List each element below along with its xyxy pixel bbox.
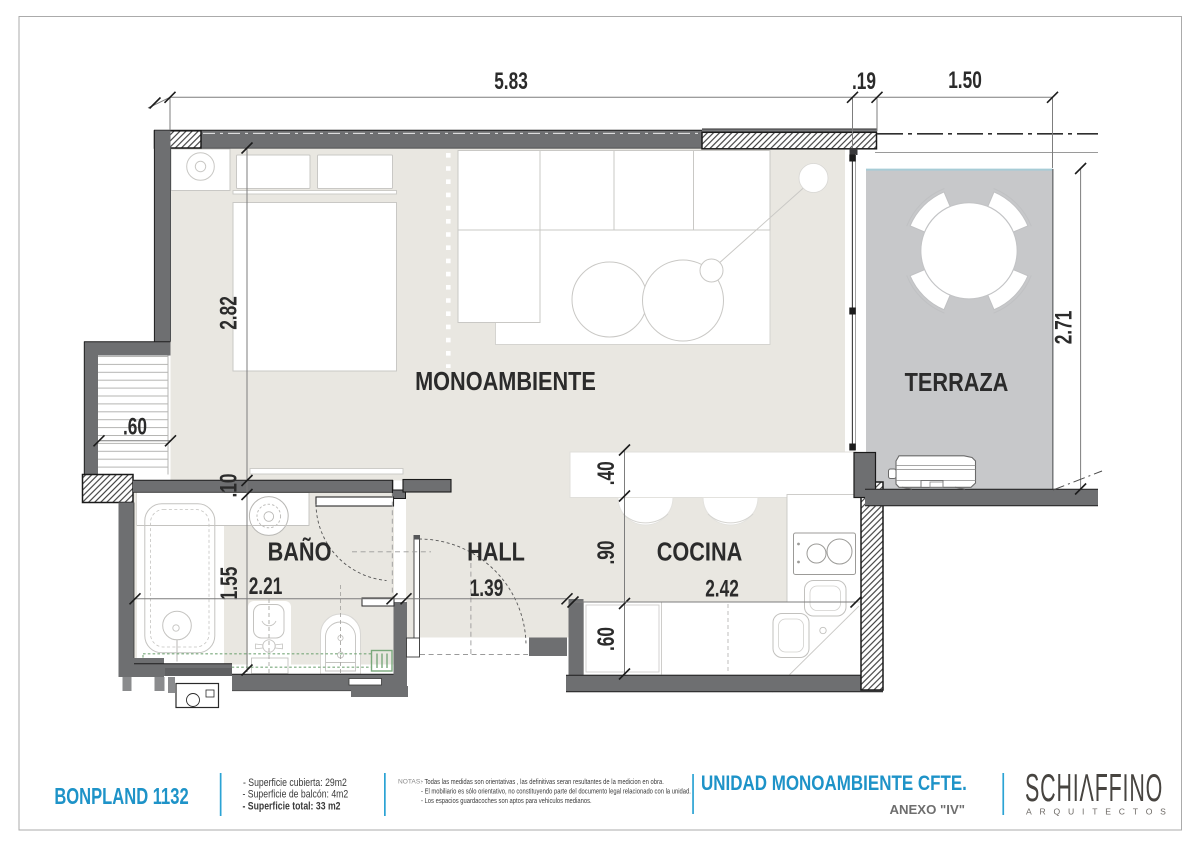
svg-text:2.71: 2.71 xyxy=(1051,310,1077,344)
svg-text:- Los espacios guardacoches: - Los espacios guardacoches son aptos pa… xyxy=(421,797,592,805)
svg-text:HALL: HALL xyxy=(467,538,525,567)
svg-text:2.21: 2.21 xyxy=(249,573,283,599)
svg-text:.60: .60 xyxy=(123,414,147,440)
svg-text:MONOAMBIENTE: MONOAMBIENTE xyxy=(415,367,596,396)
svg-text:2.42: 2.42 xyxy=(705,576,739,602)
svg-text:1.39: 1.39 xyxy=(470,575,504,601)
svg-text:COCINA: COCINA xyxy=(657,538,743,567)
svg-text:- Todas las medidas son orie: - Todas las medidas son orientativas , l… xyxy=(421,778,664,786)
svg-text:NOTAS:: NOTAS: xyxy=(398,779,422,786)
svg-text:- Superficie total: 33 m2: - Superficie total: 33 m2 xyxy=(243,801,341,813)
svg-text:5.83: 5.83 xyxy=(494,68,528,94)
svg-text:.90: .90 xyxy=(593,540,619,564)
svg-text:UNIDAD MONOAMBIENTE CFTE.: UNIDAD MONOAMBIENTE CFTE. xyxy=(701,771,967,795)
svg-text:ANEXO "IV": ANEXO "IV" xyxy=(889,802,965,817)
svg-text:- Superficie cubierta: 29m2: - Superficie cubierta: 29m2 xyxy=(243,777,347,789)
svg-text:.10: .10 xyxy=(216,473,242,497)
svg-text:- Superficie de balcón: 4m2: - Superficie de balcón: 4m2 xyxy=(243,789,349,801)
svg-text:SCHIΛFFINO: SCHIΛFFINO xyxy=(1025,766,1163,809)
svg-text:- El mobiliario es sólo orie: - El mobiliario es sólo orientativo, no … xyxy=(421,788,691,796)
svg-text:.40: .40 xyxy=(593,461,619,485)
svg-text:.60: .60 xyxy=(593,627,619,651)
svg-text:2.82: 2.82 xyxy=(216,296,242,330)
svg-text:BAÑO: BAÑO xyxy=(268,537,332,567)
svg-text:.19: .19 xyxy=(852,68,876,94)
svg-text:TERRAZA: TERRAZA xyxy=(905,368,1009,397)
svg-text:ARQUITECTOS: ARQUITECTOS xyxy=(1026,807,1174,817)
svg-text:1.50: 1.50 xyxy=(948,67,982,93)
svg-text:BONPLAND 1132: BONPLAND 1132 xyxy=(54,784,188,809)
svg-text:1.55: 1.55 xyxy=(216,566,242,600)
